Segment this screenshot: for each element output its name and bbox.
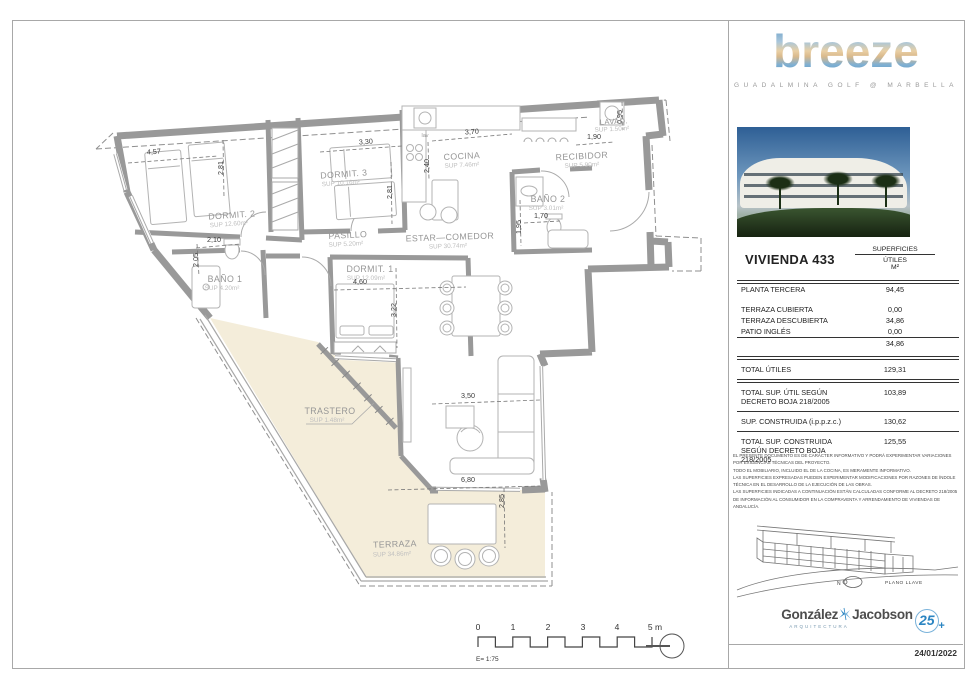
row-value: 0,00 xyxy=(855,327,935,336)
row-value: 129,31 xyxy=(855,365,935,374)
scale-tick-4: 4 xyxy=(615,622,620,632)
render-palm-1 xyxy=(765,175,795,191)
plan-sheet: 4,57 2,81 3,30 2,81 3,70 2,40 1,90 0,95 … xyxy=(0,0,976,690)
row-label: TERRAZA CUBIERTA xyxy=(741,305,853,314)
row-label: PLANTA TERCERA xyxy=(741,285,853,294)
dim-2-40: 2,40 xyxy=(422,159,431,173)
building-render-image xyxy=(737,127,910,237)
scale-tick-0: 0 xyxy=(476,622,481,632)
scale-ratio-label: E= 1:75 xyxy=(476,656,499,663)
room-cocina-name: COCINA xyxy=(443,150,480,162)
col-header-superficies: SUPERFICIES xyxy=(855,246,935,255)
room-bano2-sup: SUP 3.01m² xyxy=(529,205,564,212)
table-row: TERRAZA DESCUBIERTA 34,86 xyxy=(737,315,959,326)
row-value: 103,89 xyxy=(855,388,935,397)
render-palm-3 xyxy=(871,173,901,189)
drawing-date: 24/01/2022 xyxy=(914,648,957,658)
dim-3-70: 3,70 xyxy=(465,127,480,137)
scale-tick-5: 5 m xyxy=(648,622,662,632)
north-label: N xyxy=(837,581,841,587)
room-recibidor-name: RECIBIDOR xyxy=(555,150,608,163)
table-row: PATIO INGLÉS 0,00 xyxy=(737,326,959,337)
row-value: 130,62 xyxy=(855,417,935,426)
room-bano1-sup: SUP 4.20m² xyxy=(205,285,240,292)
dim-2-81-a: 2,81 xyxy=(216,161,225,175)
legal-line: LAS SUPERFICIES EXPRESADAS PUEDEN EXPERI… xyxy=(733,474,959,489)
room-bano2-name: BAÑO 2 xyxy=(531,194,566,204)
legal-disclaimer: EL PRESENTE DOCUMENTO ES DE CARÁCTER INF… xyxy=(733,452,959,510)
room-dormit1-sup: SUP 12.09m² xyxy=(347,275,385,282)
row-value: 34,86 xyxy=(855,316,935,325)
kitchen-lav-label: lav xyxy=(421,133,428,139)
row-value: 94,45 xyxy=(855,285,935,294)
room-dormit1-name: DORMIT. 1 xyxy=(346,264,393,274)
keyplan-label: PLANO LLAVE xyxy=(885,580,923,586)
room-cocina-sup: SUP 7.46m² xyxy=(444,161,479,170)
anniversary-number: 25 xyxy=(919,612,935,628)
date-band: 24/01/2022 xyxy=(729,644,963,645)
table-column-header: SUPERFICIES ÚTILES M² xyxy=(855,246,935,271)
legal-line: EL PRESENTE DOCUMENTO ES DE CARÁCTER INF… xyxy=(733,452,959,467)
dim-2-10: 2,10 xyxy=(207,235,221,244)
room-terraza-name: TERRAZA xyxy=(373,538,417,550)
scale-tick-1: 1 xyxy=(511,622,516,632)
floor-plan-drawing: 4,57 2,81 3,30 2,81 3,70 2,40 1,90 0,95 … xyxy=(0,0,728,690)
render-vegetation xyxy=(737,208,910,237)
table-row: 34,86 xyxy=(737,338,959,349)
scale-bar: 0 1 2 3 4 5 m E= 1:75 xyxy=(476,622,662,663)
table-row: PLANTA TERCERA 94,45 xyxy=(737,284,959,295)
butterfly-icon xyxy=(838,607,852,621)
dim-2-05: 2,05 xyxy=(191,253,200,267)
firm-name-first: González xyxy=(781,607,838,622)
dim-6-80: 6,80 xyxy=(461,475,475,484)
scale-tick-2: 2 xyxy=(546,622,551,632)
dim-2-85: 2,85 xyxy=(497,494,506,508)
anniversary-badge: 25+ xyxy=(915,609,939,633)
dim-1-95: 1,95 xyxy=(514,220,523,234)
anniversary-plus: + xyxy=(938,616,944,637)
room-trastero-sup: SUP 1.48m² xyxy=(310,417,345,424)
table-row: TERRAZA CUBIERTA 0,00 xyxy=(737,304,959,315)
dim-3-50: 3,50 xyxy=(461,391,475,400)
unit-title: VIVIENDA 433 xyxy=(745,252,835,267)
scale-tick-3: 3 xyxy=(581,622,586,632)
room-pasillo-sup: SUP 5.20m² xyxy=(328,240,363,249)
render-palm-2 xyxy=(823,171,853,187)
key-plan-sketch: N PLANO LLAVE xyxy=(735,512,960,604)
room-trastero-name: TRASTERO xyxy=(304,406,355,416)
brand-tagline: GUADALMINA GOLF @ MARBELLA xyxy=(730,82,962,89)
table-row: SUP. CONSTRUIDA (i.p.p.z.c.) 130,62 xyxy=(737,416,959,427)
dim-1-70: 1,70 xyxy=(534,211,548,220)
table-row: TOTAL ÚTILES 129,31 xyxy=(737,364,959,375)
room-lavadero-sup: SUP 1.50m² xyxy=(594,125,629,134)
col-header-m2: M² xyxy=(855,264,935,271)
room-estar-name: ESTAR—COMEDOR xyxy=(405,230,494,243)
firm-name-second: Jacobson xyxy=(852,607,913,622)
dim-3-22: 3,22 xyxy=(389,303,398,317)
room-recibidor-sup: SUP 5.90m² xyxy=(564,161,599,170)
firm-subtitle: ARQUITECTURA xyxy=(774,624,864,629)
legal-line: TODO EL MOBILIARIO, INCLUIDO EL DE LA CO… xyxy=(733,467,959,474)
title-block-divider xyxy=(728,20,729,668)
room-bano1-name: BAÑO 1 xyxy=(208,274,243,284)
room-terraza-sup: SUP 34.86m² xyxy=(373,550,411,558)
row-label: SUP. CONSTRUIDA (i.p.p.z.c.) xyxy=(741,417,853,426)
dim-4-57: 4,57 xyxy=(147,147,162,157)
row-value: 34,86 xyxy=(855,339,935,348)
room-estar-sup: SUP 30.74m² xyxy=(429,242,467,250)
table-row: TOTAL SUP. ÚTIL SEGÚN DECRETO BOJA 218/2… xyxy=(737,387,959,407)
legal-line: LAS SUPERFICIES INDICADAS A CONTINUACIÓN… xyxy=(733,488,959,510)
col-header-utiles: ÚTILES xyxy=(855,257,935,264)
row-label: TOTAL ÚTILES xyxy=(741,365,853,374)
row-label: PATIO INGLÉS xyxy=(741,327,853,336)
row-label: TOTAL SUP. ÚTIL SEGÚN DECRETO BOJA 218/2… xyxy=(741,388,853,406)
row-value: 125,55 xyxy=(855,437,935,446)
dim-2-81-b: 2,81 xyxy=(385,185,394,199)
dim-3-30: 3,30 xyxy=(359,137,374,147)
row-label: TERRAZA DESCUBIERTA xyxy=(741,316,853,325)
areas-table: VIVIENDA 433 SUPERFICIES ÚTILES M² PLANT… xyxy=(737,246,959,465)
row-value: 0,00 xyxy=(855,305,935,314)
brand-logo: breeze xyxy=(730,28,962,74)
project-brand: breeze GUADALMINA GOLF @ MARBELLA xyxy=(730,28,962,89)
